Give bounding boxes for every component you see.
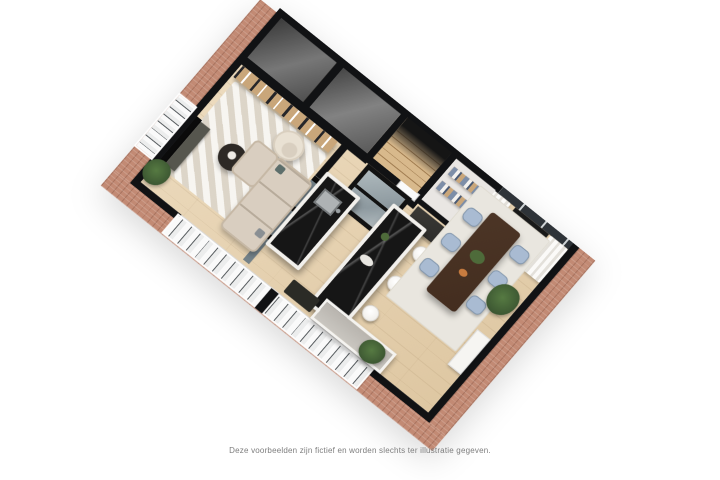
disclaimer-caption: Deze voorbeelden zijn fictief en worden … [0,446,720,455]
floorplan-3d-render [130,8,579,423]
floorplan-page: Deze voorbeelden zijn fictief en worden … [0,0,720,480]
